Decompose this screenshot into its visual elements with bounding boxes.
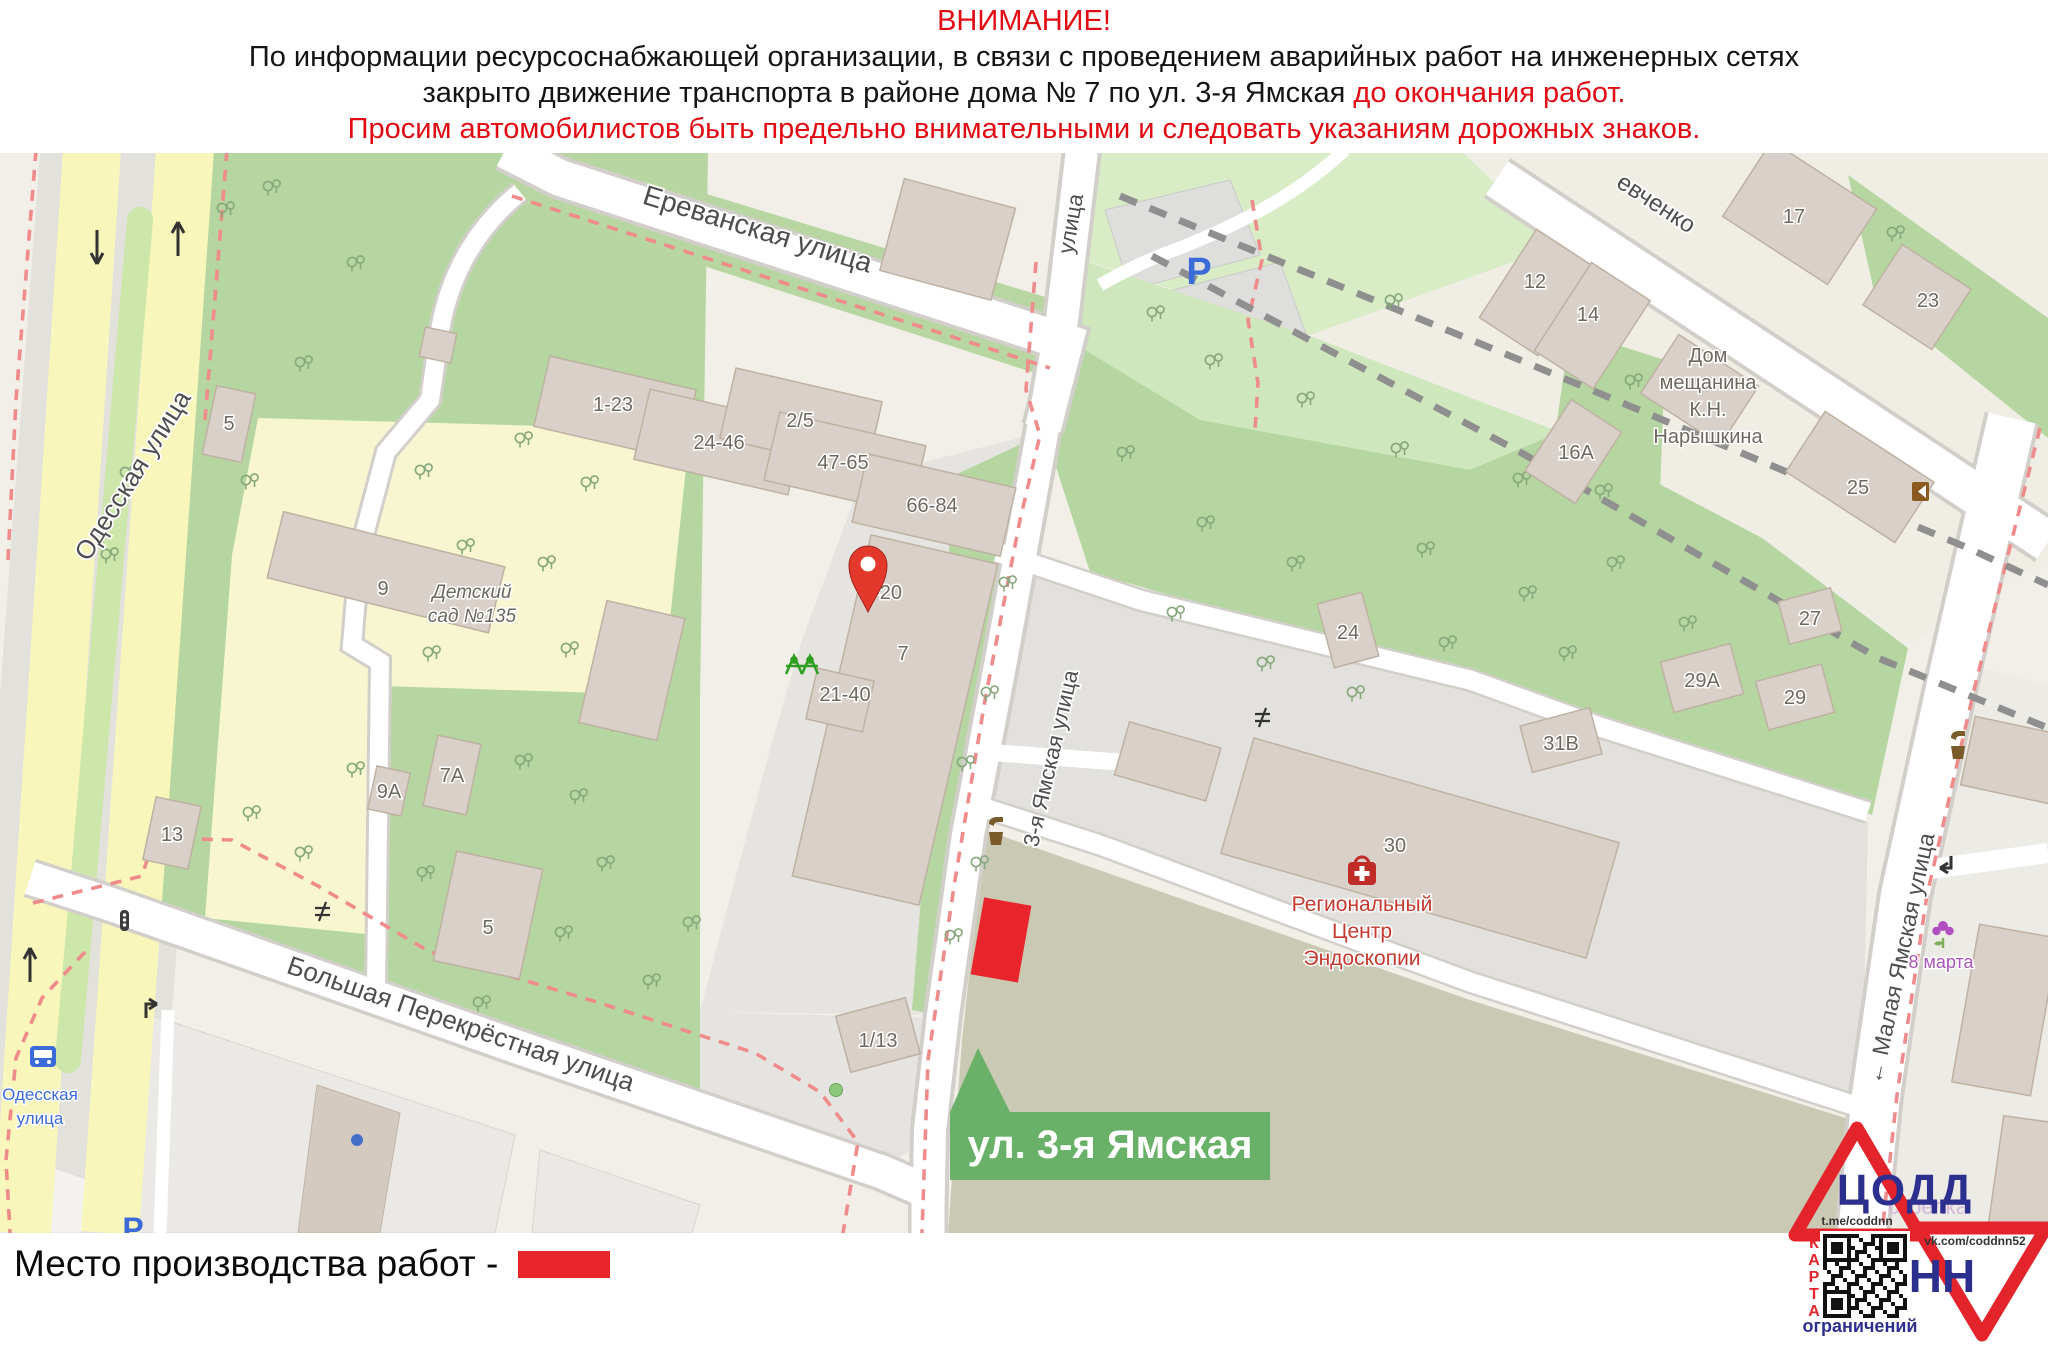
building-label: 21-40: [819, 684, 870, 706]
notice-line3-black: закрыто движение транспорта в районе дом…: [422, 77, 1345, 109]
building-label: 30: [1384, 835, 1406, 857]
bus-stop-label: Одесская: [2, 1085, 78, 1104]
building-label: 7: [897, 643, 908, 665]
building-label: 29: [1784, 687, 1806, 709]
traffic-light-icon: [120, 910, 129, 931]
notice-line3: закрыто движение транспорта в районе дом…: [0, 75, 2048, 111]
building-label: 7А: [440, 765, 465, 787]
poi-dot: [351, 1134, 363, 1146]
building-label: 5: [223, 413, 234, 435]
map: P P: [0, 0, 2048, 1347]
legend: Место производства работ -: [14, 1243, 610, 1285]
building-label: 47-65: [817, 452, 868, 474]
notice-title: ВНИМАНИЕ!: [0, 3, 2048, 39]
notice-line4: Просим автомобилистов быть предельно вни…: [0, 111, 2048, 147]
logo-karta: КАРТА: [1808, 1235, 1820, 1320]
poi-label: К.Н.: [1689, 399, 1726, 421]
poi-label: Нарышкина: [1653, 426, 1763, 448]
traffic-notice-poster: { "header": { "title": "ВНИМАНИЕ!", "lin…: [0, 0, 2048, 1347]
poi-label: Детский: [431, 582, 512, 603]
logo-city: НН: [1909, 1250, 1975, 1302]
building-label: 9А: [377, 781, 402, 803]
building-label: 27: [1799, 608, 1821, 630]
street-callout-label: ул. 3-я Ямская: [967, 1123, 1252, 1167]
legend-swatch: [518, 1251, 610, 1278]
poi-label: 8 марта: [1908, 952, 1974, 972]
poi-label: Эндоскопии: [1303, 947, 1420, 970]
poi-label: Региональный: [1292, 893, 1433, 916]
building-label: 1/13: [859, 1030, 898, 1052]
building-label: 31В: [1543, 733, 1579, 755]
building: [419, 327, 457, 363]
parking-icon: P: [122, 1211, 143, 1247]
logo-restrictions: ограничений: [1803, 1316, 1918, 1336]
qr-code-icon: [1820, 1231, 1910, 1321]
building-label: 24-46: [693, 432, 744, 454]
poi-label: сад №135: [428, 606, 517, 627]
parking-icon: P: [1186, 251, 1211, 293]
building-label: 5: [482, 917, 493, 939]
building-label: 29А: [1684, 670, 1720, 692]
building-label: 66-84: [906, 495, 957, 517]
building-label: 17: [1783, 206, 1805, 228]
building-label: 14: [1577, 304, 1599, 326]
logo-org: ЦОДД: [1837, 1166, 1973, 1215]
logo-telegram: t.me/coddnn: [1821, 1214, 1892, 1228]
poi-label: Центр: [1332, 920, 1392, 943]
bus-stop-label: улица: [17, 1109, 64, 1128]
building-label: 13: [161, 824, 183, 846]
building-label: 24: [1337, 622, 1359, 644]
notice-line2: По информации ресурсоснабжающей организа…: [0, 39, 2048, 75]
poi-label: мещанина: [1660, 372, 1758, 394]
building-label: 9: [377, 578, 388, 600]
notice-header: ВНИМАНИЕ! По информации ресурсоснабжающе…: [0, 0, 2048, 153]
door-icon: [1912, 482, 1929, 501]
legend-label: Место производства работ -: [14, 1243, 498, 1285]
bus-stop-icon: [30, 1046, 56, 1067]
building-label: 23: [1917, 290, 1939, 312]
building-label: 12: [1524, 271, 1546, 293]
notice-line3-red: до окончания работ.: [1353, 77, 1625, 109]
building-label: 2/5: [786, 410, 814, 432]
building-label: 16А: [1558, 442, 1594, 464]
logo-vk: vk.com/coddnn52: [1924, 1234, 2026, 1248]
building-label: 1-23: [593, 394, 633, 416]
building-label: 25: [1847, 477, 1869, 499]
poi-dot: [830, 1084, 843, 1097]
poi-label: Дом: [1689, 345, 1728, 367]
